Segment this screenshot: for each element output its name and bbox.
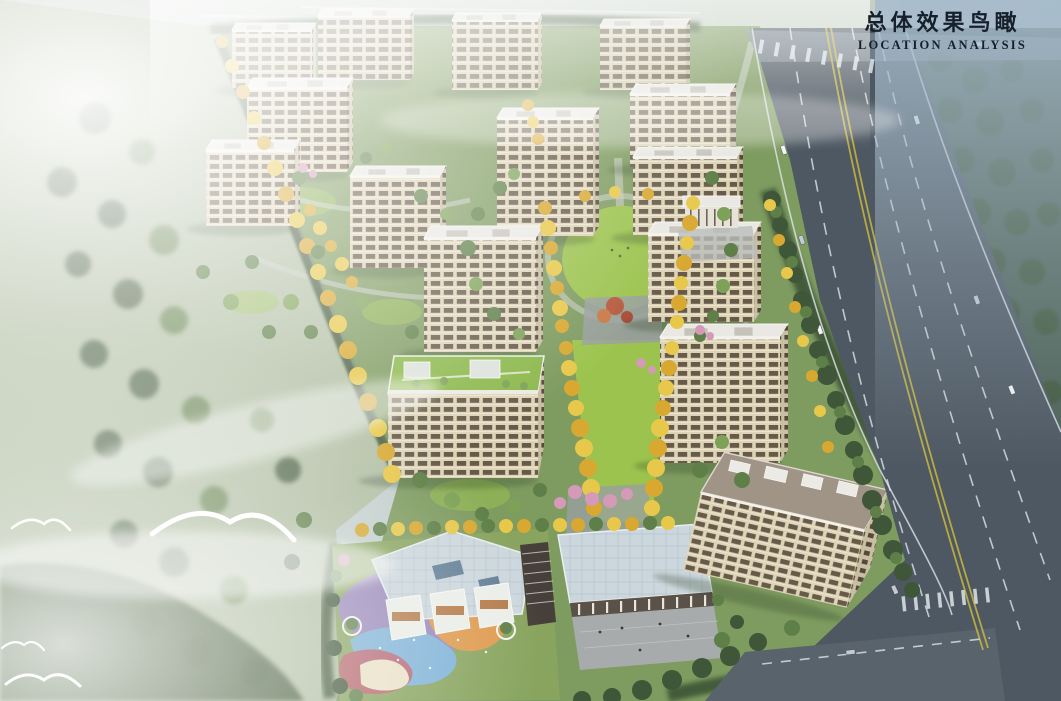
aerial-rendering-page: 总体效果鸟瞰 LOCATION ANALYSIS (0, 0, 1061, 701)
aerial-rendering (0, 0, 1061, 701)
title-english: LOCATION ANALYSIS (858, 38, 1027, 53)
title-chinese: 总体效果鸟瞰 (858, 9, 1027, 37)
title-block: 总体效果鸟瞰 LOCATION ANALYSIS (858, 9, 1027, 53)
fog-overlays (0, 0, 1061, 701)
